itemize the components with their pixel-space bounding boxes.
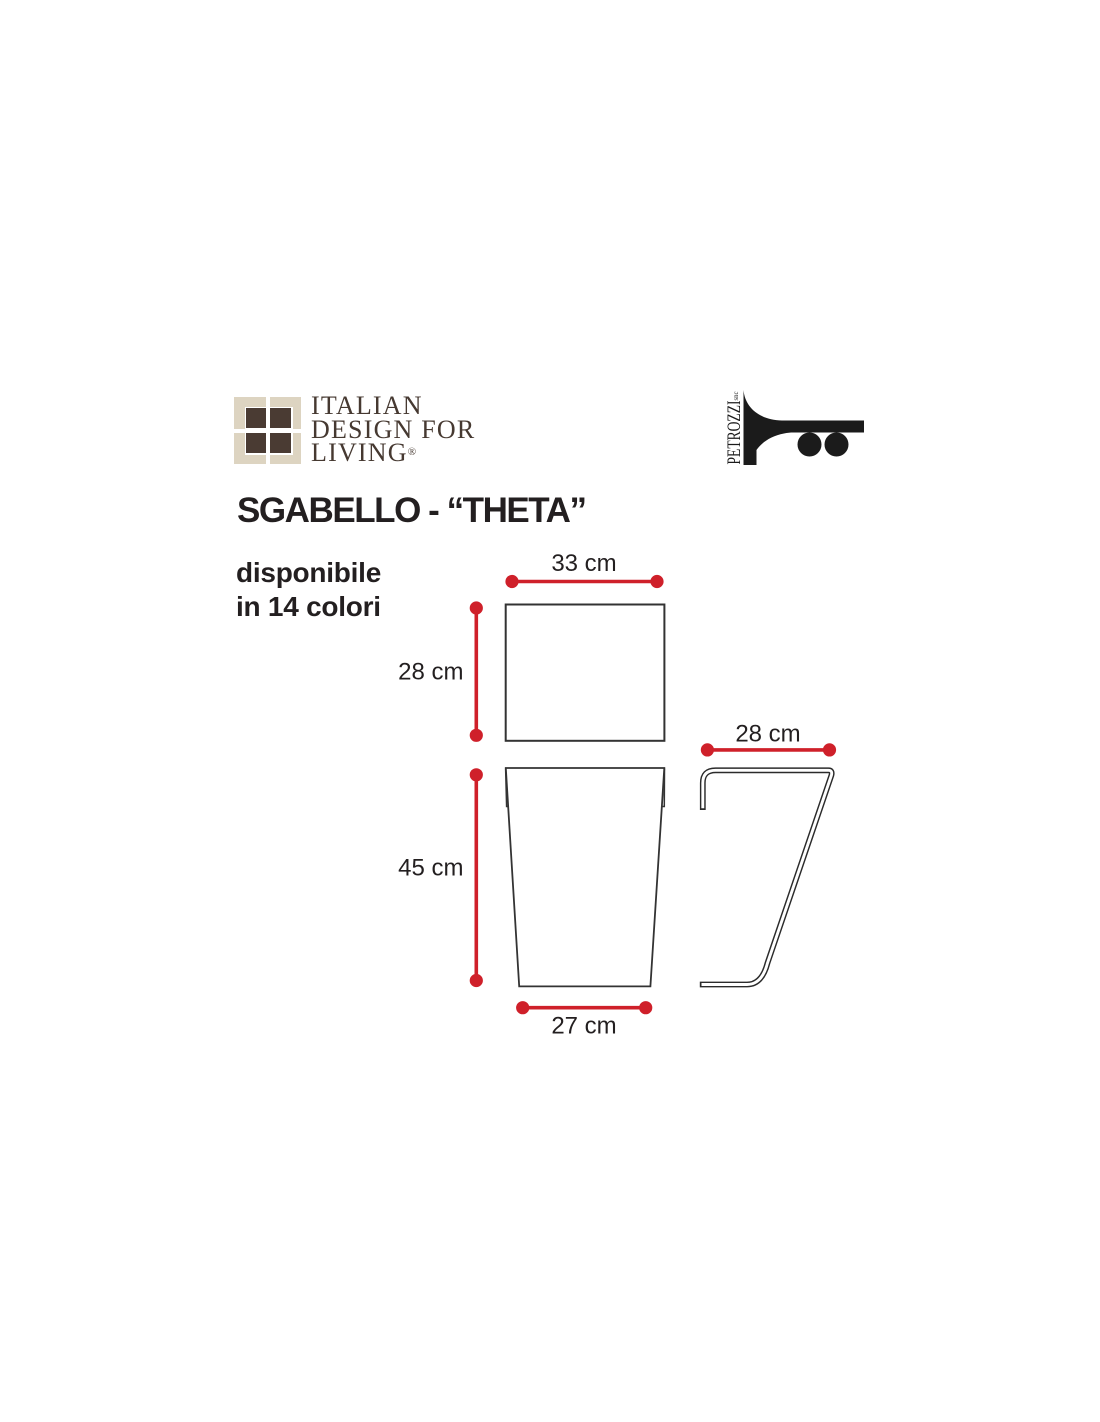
- svg-text:28 cm: 28 cm: [398, 659, 463, 686]
- svg-text:28 cm: 28 cm: [735, 721, 800, 748]
- svg-text:33 cm: 33 cm: [551, 550, 616, 577]
- svg-text:45 cm: 45 cm: [398, 855, 463, 882]
- svg-text:27 cm: 27 cm: [551, 1013, 616, 1040]
